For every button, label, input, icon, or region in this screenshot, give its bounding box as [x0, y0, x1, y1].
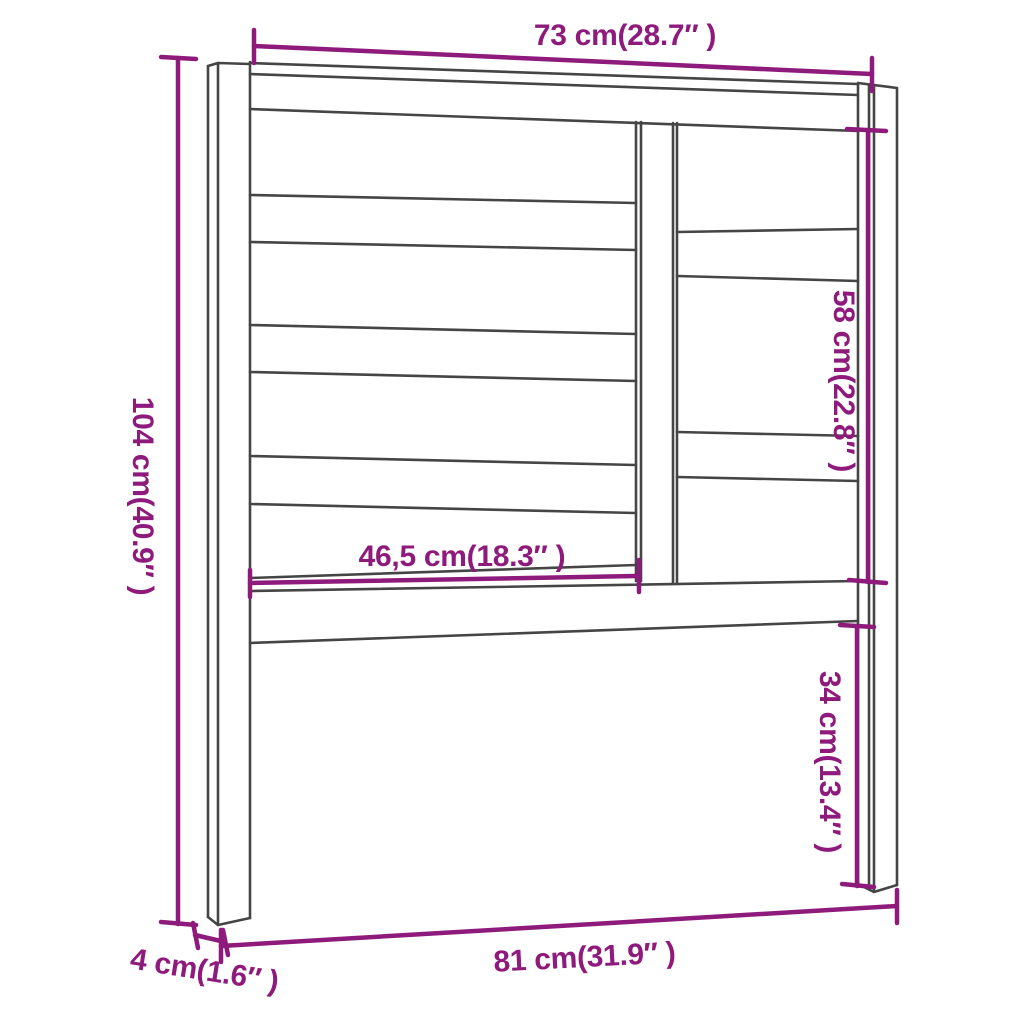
right-slat-line-1: [677, 229, 858, 232]
right-slat-line-4: [677, 477, 858, 481]
dimension-label-inner-width: 46,5 cm(18.3″ ): [359, 540, 566, 573]
diagram-canvas: 73 cm(28.7″ ) 104 cm(40.9″ ) 46,5 cm(18.…: [0, 0, 1024, 1024]
dim-tick-right-lower-top: [840, 625, 874, 627]
dim-tick-left-height-top: [161, 57, 196, 59]
dimension-label-top-width: 73 cm(28.7″ ): [534, 19, 716, 52]
right-slat-line-2: [677, 276, 858, 281]
left-stile-bottom-edge: [208, 917, 250, 925]
top-rail-bottom-edge: [250, 109, 858, 131]
dimension-label-right-lower-height: 34 cm(13.4″ ): [813, 671, 846, 853]
dimension-label-leg-depth: 4 cm(1.6″ ): [128, 943, 281, 999]
dim-tick-right-lower-bottom: [842, 884, 874, 887]
left-slat-line-5: [250, 456, 636, 465]
dimension-label-bottom-width: 81 cm(31.9″ ): [493, 936, 677, 978]
headboard-outline: [208, 62, 897, 925]
left-slat-line-1: [250, 195, 636, 203]
left-slat-line-4: [250, 372, 636, 381]
dim-tick-leg-depth-right: [223, 930, 228, 955]
top-rail-face-edge: [250, 74, 858, 95]
bottom-rail-bottom-edge: [250, 621, 858, 643]
dim-tick-left-height-bottom: [161, 922, 196, 925]
left-slat-line-3: [250, 325, 636, 334]
left-stile-top-edge: [208, 63, 250, 66]
right-stile-top-edge: [858, 83, 897, 88]
dim-line-bottom-width: [221, 906, 897, 946]
top-rail-top-edge: [250, 63, 858, 84]
dim-tick-right-upper-bottom: [849, 580, 886, 583]
left-slat-line-2: [250, 242, 636, 250]
left-slat-line-6: [250, 504, 636, 513]
dimension-label-right-upper-height: 58 cm(22.8″ ): [827, 290, 860, 472]
dimension-label-left-height: 104 cm(40.9″ ): [126, 397, 159, 596]
headboard-dimension-diagram: 73 cm(28.7″ ) 104 cm(40.9″ ) 46,5 cm(18.…: [0, 0, 1024, 1024]
dim-tick-right-upper-top: [847, 129, 886, 131]
dimension-lines: [161, 30, 897, 962]
